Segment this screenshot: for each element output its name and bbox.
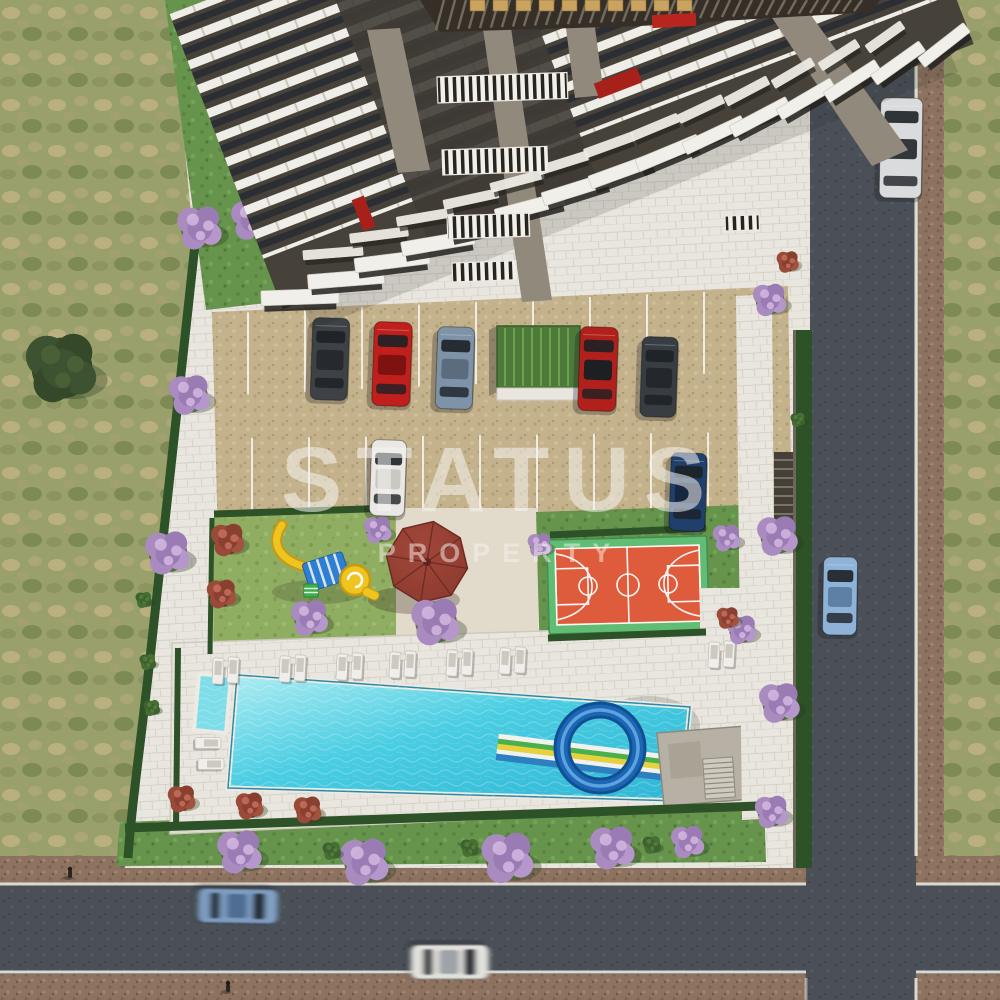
side-table (457, 652, 463, 658)
parked-car-white (364, 439, 408, 520)
railing-comb (452, 261, 517, 282)
side-table (510, 650, 516, 656)
car-on-road-blue-moving (194, 883, 279, 924)
side-table (290, 658, 296, 664)
aerial-site-render: STATUS PROPERTY (0, 0, 1000, 1000)
sun-lounger (193, 738, 221, 751)
east-walkway (736, 294, 776, 820)
railing-comb (442, 146, 548, 175)
parked-car-red-2 (572, 326, 619, 415)
side-table (719, 645, 725, 651)
east-hedge (796, 330, 812, 868)
platform-stairs (703, 757, 736, 799)
parked-car-navy (664, 452, 709, 535)
playground-ladder (304, 584, 318, 597)
railing-comb (437, 72, 568, 103)
roadside-grass-right (944, 0, 1000, 1000)
side-table (223, 661, 229, 667)
slide-platform (657, 726, 753, 806)
car-on-road-white-moving (407, 940, 489, 980)
railing-comb (725, 215, 760, 231)
sun-lounger (196, 759, 224, 772)
car-on-road-light-blue (817, 557, 858, 640)
side-table (400, 654, 406, 660)
scene-canvas (0, 0, 1000, 1000)
side-table (347, 656, 353, 662)
road-horizontal (0, 884, 1000, 974)
parked-car-steel-blue (430, 326, 476, 413)
green-trellis-planter (489, 326, 580, 400)
parked-car-dark (634, 336, 679, 421)
parked-car-red (366, 321, 413, 410)
basketball-court (547, 536, 709, 634)
railing-comb (447, 213, 530, 239)
parked-suv-dark (305, 317, 351, 404)
